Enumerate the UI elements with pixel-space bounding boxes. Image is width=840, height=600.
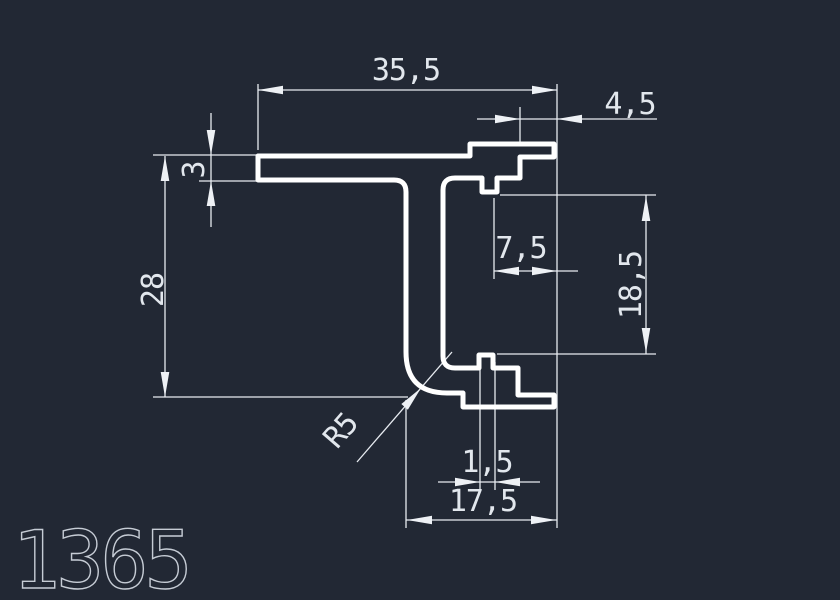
dim-label-top-width: 35,5 <box>372 53 440 88</box>
dim-label-foot-width: 17,5 <box>449 484 517 519</box>
dim-label-channel-height: 18,5 <box>614 251 649 319</box>
dim-label-total-height: 28 <box>136 273 171 307</box>
arrow-355-left <box>258 86 283 95</box>
arrow-185-bottom <box>642 328 651 353</box>
arrow-45-right <box>557 115 582 124</box>
arrow-175-right <box>531 516 556 525</box>
arrow-355-right <box>532 86 557 95</box>
arrow-28-top <box>161 156 170 181</box>
arrow-175-left <box>407 516 432 525</box>
arrow-45-left <box>495 115 520 124</box>
arrow-3-bottom <box>207 181 216 206</box>
dimension-labels: 35,5 4,5 3 28 7,5 18,5 R5 1,5 17,5 <box>136 53 656 519</box>
arrow-185-top <box>642 196 651 221</box>
dim-label-tab-width: 1,5 <box>461 445 512 480</box>
dim-label-lip-width: 4,5 <box>604 87 655 122</box>
part-number: 1365 <box>12 514 189 600</box>
arrow-75-right <box>532 267 557 276</box>
leader-line-r5 <box>357 352 452 462</box>
profile-outline <box>258 144 554 407</box>
profile-drawing-1365: 35,5 4,5 3 28 7,5 18,5 R5 1,5 17,5 1365 <box>0 0 840 600</box>
arrow-3-top <box>207 130 216 155</box>
arrow-75-left <box>494 267 519 276</box>
dim-label-flange-thickness: 3 <box>177 161 212 178</box>
cad-drawing-canvas: 35,5 4,5 3 28 7,5 18,5 R5 1,5 17,5 1365 <box>0 0 840 600</box>
dim-label-hook-depth: 7,5 <box>495 231 546 266</box>
arrow-28-bottom <box>161 372 170 397</box>
dim-label-corner-radius: R5 <box>317 407 366 456</box>
